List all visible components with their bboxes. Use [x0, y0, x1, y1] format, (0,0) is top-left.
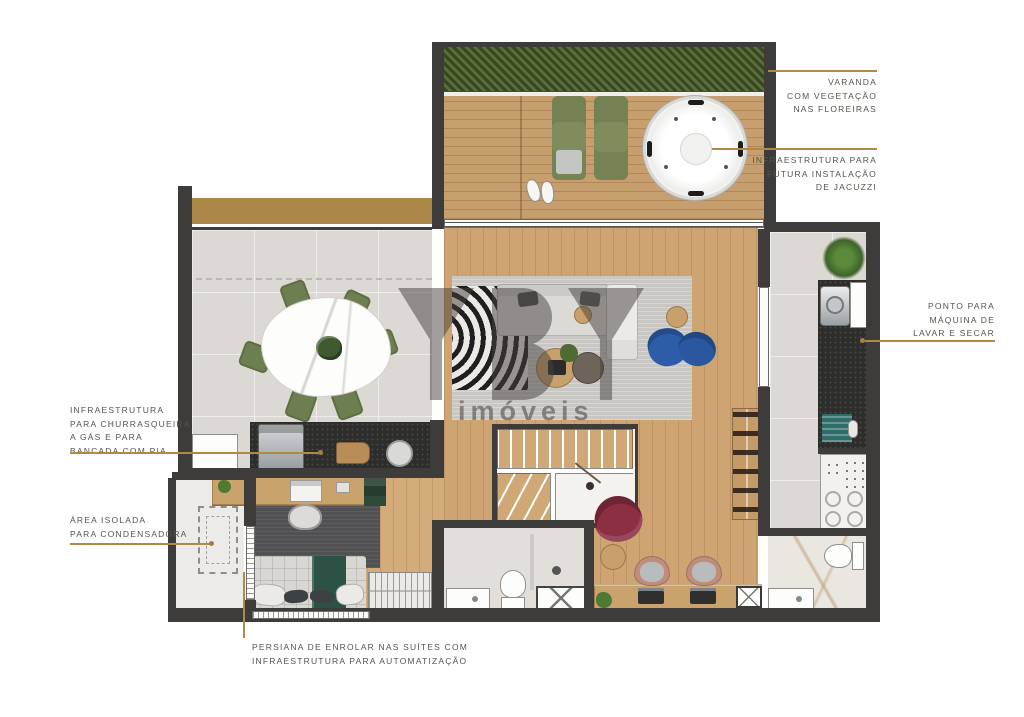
bath-top-wall	[432, 520, 592, 528]
plant	[596, 592, 612, 608]
kitchen-left-wall-upper	[758, 229, 770, 287]
leader-line-varanda	[768, 70, 877, 72]
jacuzzi-mark	[647, 141, 652, 157]
condenser-left-wall	[168, 478, 176, 616]
terrace-left-wall	[432, 45, 444, 229]
floor-lamp	[586, 482, 594, 490]
bath-right-wall	[584, 520, 594, 616]
leader-line-jacuzzi	[712, 148, 877, 150]
side-table	[666, 306, 688, 328]
bath-left-wall	[432, 520, 444, 616]
burner	[825, 511, 841, 527]
lavabo-toilet-tank	[852, 542, 864, 570]
bedroom-window-persiana	[252, 611, 370, 619]
jacuzzi-jet	[712, 117, 716, 121]
label-varanda: VARANDA COM VEGETAÇÃO NAS FLOREIRAS	[697, 76, 877, 117]
stair-winder	[497, 473, 551, 523]
projection-dashed-line	[196, 278, 432, 280]
watermark-letter-y	[398, 288, 474, 400]
shower-head	[552, 566, 561, 575]
burner	[847, 511, 863, 527]
kitchen-window	[759, 287, 769, 387]
stair-treads-upper	[497, 429, 633, 469]
jacuzzi-jet	[664, 165, 668, 169]
lavabo-top-wall	[758, 528, 868, 536]
burner	[825, 491, 841, 507]
pergola-edge-dark	[192, 227, 432, 230]
toilet-bowl	[500, 570, 526, 598]
pergola-left-block	[178, 186, 192, 234]
office-chair	[634, 556, 670, 586]
cooktop	[820, 454, 868, 532]
counter-end-wall	[430, 420, 444, 478]
label-condensadora: ÁREA ISOLADA PARA CONDENSADORA	[70, 514, 250, 541]
kitchen-left-wall-lower	[758, 387, 770, 532]
leader-line-lavanderia	[865, 340, 995, 342]
label-persiana: PERSIANA DE ENROLAR NAS SUÍTES COM INFRA…	[252, 641, 572, 668]
lavabo-vanity	[768, 588, 814, 610]
leader-line-churrasqueira	[70, 452, 320, 454]
leader-line-condensadora	[70, 543, 211, 545]
leader-dot-churrasqueira	[318, 450, 323, 455]
washer-door	[826, 296, 844, 314]
label-jacuzzi: INFRAESTRUTURA PARA FUTURA INSTALAÇÃO DE…	[697, 154, 877, 195]
watermark-subtitle: imóveis	[458, 396, 594, 427]
cooktop-knobs	[825, 461, 839, 477]
bedroom-laptop	[290, 480, 322, 502]
bath-divider-wall	[530, 534, 534, 590]
watermark-letter-y	[568, 288, 644, 400]
bath-vanity	[446, 588, 490, 610]
cutting-board	[336, 442, 370, 464]
leader-dot-condensadora	[209, 541, 214, 546]
watermark-letter-b	[492, 288, 556, 400]
pouf	[600, 544, 626, 570]
wardrobe	[368, 572, 432, 610]
watermark-brand	[398, 288, 648, 404]
desk-item	[336, 482, 350, 493]
office-chair	[686, 556, 722, 586]
floor-plan: imóveis VARANDA COM VEGETAÇÃO NAS FLOREI…	[0, 0, 1024, 717]
cooktop-knobs	[843, 459, 865, 489]
shower-tray	[536, 586, 586, 610]
office-chair-seat	[640, 562, 664, 582]
right-wall	[866, 222, 880, 622]
lounge-chair	[594, 96, 628, 180]
deck-step-line	[520, 96, 522, 219]
pergola-band	[192, 198, 432, 224]
desk-frame	[736, 586, 762, 608]
stair-rail	[551, 473, 555, 523]
lounge-towel	[556, 150, 582, 174]
leader-line-persiana	[243, 572, 245, 638]
terrace-sliding-door	[444, 219, 764, 228]
counter-sink	[386, 440, 413, 467]
desk-chair	[288, 504, 322, 530]
towel-roll	[848, 420, 858, 438]
lavabo-faucet	[796, 596, 802, 602]
kitchen-top-wall	[764, 222, 878, 232]
laptop	[690, 588, 716, 604]
table-centerpiece-plant	[316, 336, 342, 360]
lavabo-toilet-bowl	[824, 544, 852, 568]
burner	[847, 491, 863, 507]
laptop	[638, 588, 664, 604]
office-chair-seat	[692, 562, 716, 582]
bath-faucet	[472, 596, 478, 602]
label-lavanderia: PONTO PARA MÁQUINA DE LAVAR E SECAR	[845, 300, 995, 341]
leader-dot-lavanderia	[860, 338, 865, 343]
jacuzzi-jet	[674, 117, 678, 121]
label-churrasqueira: INFRAESTRUTURA PARA CHURRASQUEIRA A GÁS …	[70, 404, 250, 458]
plant	[218, 480, 231, 493]
terrace-right-wall	[764, 45, 776, 229]
plant	[822, 236, 866, 280]
condenser-top-wall	[172, 472, 250, 480]
green-cabinet	[364, 476, 386, 506]
